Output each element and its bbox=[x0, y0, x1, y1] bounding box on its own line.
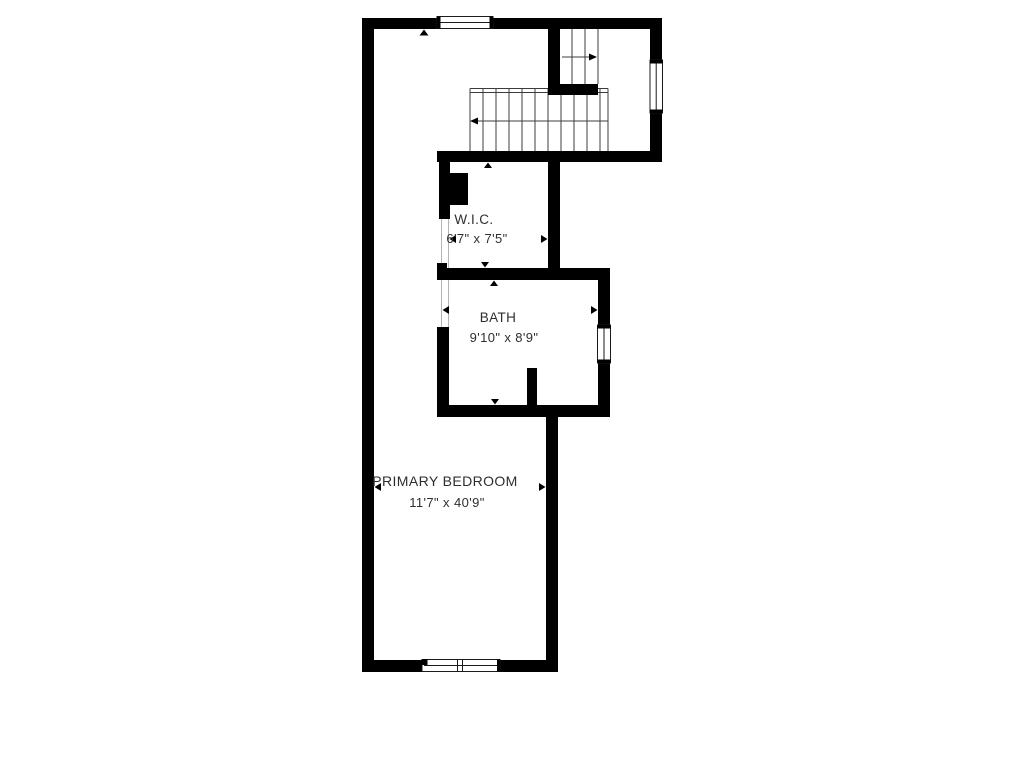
walls bbox=[362, 18, 662, 672]
top-wall-window bbox=[437, 17, 493, 29]
wic-dimensions: 6'7" x 7'5" bbox=[446, 231, 507, 246]
bath-depth-top-tick bbox=[490, 281, 498, 287]
bath-top-wall-cap bbox=[437, 263, 447, 280]
stair-arrow-upper-right bbox=[562, 54, 597, 61]
wic-chimney-block bbox=[439, 173, 468, 205]
upper-flight-bottom-wall bbox=[548, 84, 598, 95]
bedroom-length-top-tick bbox=[420, 30, 429, 36]
wic-depth-top-tick bbox=[484, 163, 492, 169]
bedroom-width-right-tick bbox=[539, 483, 546, 491]
bottom-wall-double-window bbox=[422, 659, 501, 672]
bath-right-wall-window bbox=[598, 325, 611, 363]
bath-label: BATH bbox=[480, 310, 517, 325]
bath-partition-stub bbox=[527, 368, 537, 417]
wic-depth-bottom-tick bbox=[481, 262, 489, 268]
bath-width-left-tick bbox=[443, 306, 450, 314]
bath-depth-bottom-tick bbox=[491, 399, 499, 405]
floor-plan: W.I.C. 6'7" x 7'5" BATH 9'10" x 8'9" PRI… bbox=[0, 0, 1024, 768]
floor-plan-page: W.I.C. 6'7" x 7'5" BATH 9'10" x 8'9" PRI… bbox=[0, 0, 1024, 768]
bath-top-wall bbox=[437, 268, 610, 280]
dimension-ticks bbox=[375, 30, 598, 492]
upper-right-wall-window bbox=[650, 60, 663, 113]
top-wall bbox=[362, 18, 662, 29]
primary-bedroom-label: PRIMARY BEDROOM bbox=[372, 473, 518, 489]
wic-label: W.I.C. bbox=[454, 212, 493, 227]
bath-left-wall bbox=[437, 327, 449, 417]
primary-bedroom-dimensions: 11'7" x 40'9" bbox=[409, 495, 485, 510]
wic-right-wall bbox=[548, 162, 560, 280]
bath-door-opening bbox=[442, 280, 449, 327]
room-labels: W.I.C. 6'7" x 7'5" BATH 9'10" x 8'9" PRI… bbox=[372, 212, 538, 510]
stair-bottom-wall bbox=[437, 151, 662, 162]
dimension-end-marker bbox=[422, 659, 428, 665]
bath-dimensions: 9'10" x 8'9" bbox=[470, 330, 539, 345]
bedroom-right-wall bbox=[546, 417, 558, 672]
stair-treads-lower bbox=[470, 89, 608, 152]
bath-bottom-wall bbox=[437, 405, 610, 417]
wic-width-right-tick bbox=[541, 235, 548, 243]
bath-width-right-tick bbox=[591, 306, 598, 314]
stairs-lower-flight bbox=[470, 89, 608, 152]
left-wall bbox=[362, 18, 374, 672]
